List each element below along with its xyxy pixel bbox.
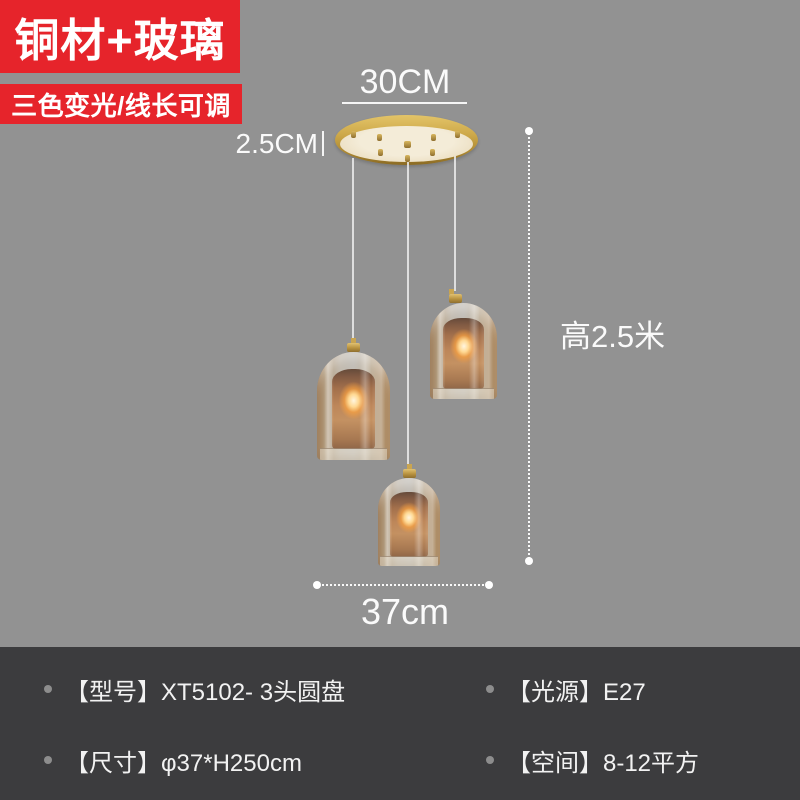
bullet-icon: [486, 756, 494, 764]
lamp-socket-cap: [449, 294, 462, 303]
badge-material: 铜材+玻璃: [0, 0, 240, 73]
disc-thickness-label: 2.5CM: [226, 128, 318, 160]
pendant-wire-right: [454, 156, 456, 291]
dimension-endpoint-dot: [485, 581, 493, 589]
pendant-lamp-right: [430, 289, 497, 399]
bullet-icon: [486, 685, 494, 693]
spread-dimension-line: [318, 584, 488, 586]
screw-icon: [377, 134, 382, 141]
screw-icon: [431, 134, 436, 141]
disc-diameter-line: [342, 102, 467, 104]
pendant-lamp-left: [317, 338, 390, 460]
glass-bottom-rim: [320, 448, 387, 460]
lamp-socket-cap: [403, 469, 416, 478]
disc-diameter-label: 30CM: [338, 63, 472, 102]
screw-icon: [378, 149, 383, 156]
disc-thickness-tick: [322, 131, 324, 156]
spec-item-space: 【空间】8-12平方: [486, 745, 699, 775]
pendant-wire-center: [407, 162, 409, 466]
screw-icon: [455, 131, 460, 138]
spec-item-light-source: 【光源】E27: [486, 674, 646, 704]
screw-icon: [405, 155, 410, 162]
spec-light-source-text: 【光源】E27: [507, 672, 646, 707]
glass-bottom-rim: [380, 556, 437, 566]
lamp-outer-glass: [317, 352, 390, 460]
lamp-outer-glass: [378, 478, 440, 566]
bullet-icon: [44, 685, 52, 693]
dimension-endpoint-dot: [525, 127, 533, 135]
spec-item-size: 【尺寸】φ37*H250cm: [44, 745, 302, 775]
product-showcase: 铜材+玻璃 三色变光/线长可调: [0, 0, 800, 800]
spec-bar: 【型号】XT5102- 3头圆盘 【光源】E27 【尺寸】φ37*H250cm …: [0, 647, 800, 800]
drop-height-label: 高2.5米: [560, 311, 665, 356]
badge-feature: 三色变光/线长可调: [0, 84, 242, 124]
ceiling-disc: [335, 115, 478, 165]
lamp-socket-cap: [347, 343, 360, 352]
glass-highlight: [430, 303, 497, 399]
glass-highlight: [317, 352, 390, 460]
pendant-wire-left: [352, 158, 354, 338]
dimension-endpoint-dot: [313, 581, 321, 589]
screw-icon: [430, 149, 435, 156]
glass-bottom-rim: [433, 388, 495, 399]
glass-highlight: [378, 478, 440, 566]
screw-icon: [404, 141, 411, 148]
spread-width-label: 37cm: [338, 591, 472, 633]
spec-item-model: 【型号】XT5102- 3头圆盘: [44, 674, 345, 704]
screw-icon: [351, 131, 356, 138]
dimension-endpoint-dot: [525, 557, 533, 565]
spec-model-text: 【型号】XT5102- 3头圆盘: [65, 672, 345, 707]
pendant-lamp-center: [378, 464, 440, 566]
height-dimension-line: [528, 133, 530, 559]
spec-space-text: 【空间】8-12平方: [507, 743, 699, 778]
spec-size-text: 【尺寸】φ37*H250cm: [65, 743, 302, 778]
lamp-outer-glass: [430, 303, 497, 399]
bullet-icon: [44, 756, 52, 764]
